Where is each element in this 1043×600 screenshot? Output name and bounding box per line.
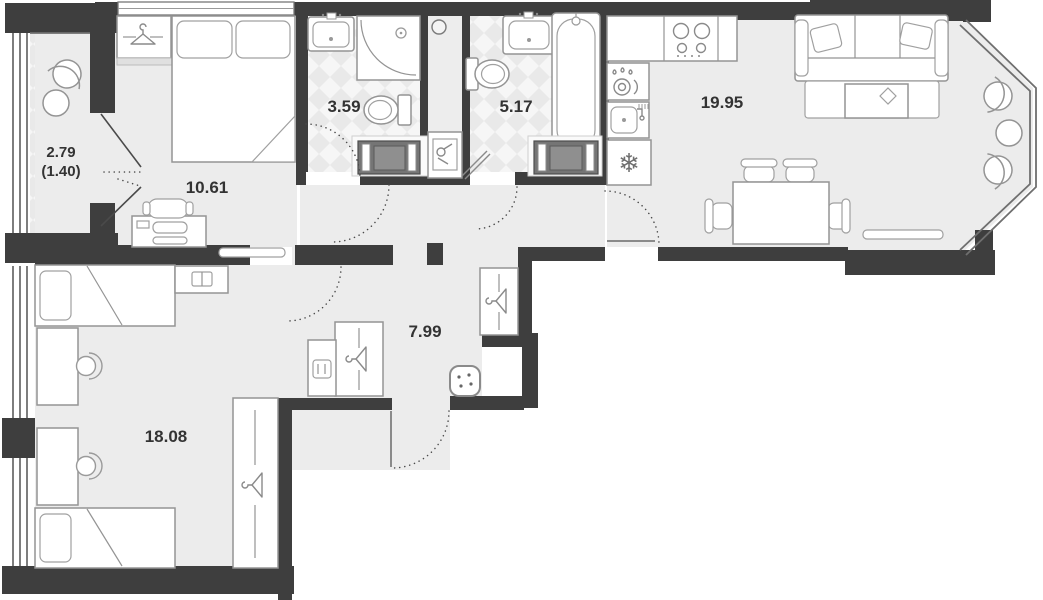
hall-wardrobe-2 bbox=[480, 268, 518, 335]
electrical-panel bbox=[450, 366, 480, 396]
dining-chair bbox=[783, 159, 817, 182]
washbasin-large bbox=[503, 12, 555, 54]
desk-2 bbox=[37, 428, 78, 505]
kitchen-sink bbox=[607, 102, 649, 138]
floor-plan-canvas: ❄ bbox=[0, 0, 1043, 600]
water-valve-icon bbox=[433, 139, 457, 170]
fridge: ❄ bbox=[607, 140, 651, 185]
side-table bbox=[996, 120, 1022, 146]
hall-wardrobe bbox=[335, 322, 383, 396]
dining-chair bbox=[828, 199, 850, 233]
snowflake-icon: ❄ bbox=[618, 148, 640, 178]
double-bed bbox=[172, 16, 295, 162]
balcony-table bbox=[43, 90, 69, 116]
coffee-table bbox=[845, 84, 908, 118]
dining-chair bbox=[705, 199, 732, 233]
children-bedroom-glazing bbox=[13, 266, 27, 566]
bedroom-window bbox=[118, 2, 294, 15]
washing-machine bbox=[534, 141, 598, 174]
desk-1 bbox=[37, 328, 78, 405]
balcony-coef-label: (1.40) bbox=[41, 163, 80, 180]
shower-room-area-label: 3.59 bbox=[327, 97, 360, 116]
bathtub bbox=[552, 13, 600, 153]
bedroom-desk-chair bbox=[143, 199, 193, 218]
dish-dryer bbox=[607, 63, 649, 100]
single-bed-1 bbox=[35, 265, 175, 326]
dining-chair bbox=[741, 159, 777, 182]
corner-shower bbox=[357, 16, 420, 80]
shoe-cabinet bbox=[308, 340, 336, 396]
bedroom-area-label: 10.61 bbox=[186, 178, 229, 197]
bedroom-wardrobe bbox=[117, 16, 174, 65]
vent-duct-icon bbox=[432, 20, 446, 34]
kitchen-counter bbox=[607, 16, 737, 61]
bathroom-area-label: 5.17 bbox=[499, 97, 532, 116]
shelf bbox=[219, 248, 285, 257]
nightstand-books bbox=[175, 266, 228, 293]
dining-table bbox=[733, 182, 829, 244]
children-room-area-label: 18.08 bbox=[145, 427, 188, 446]
window-sill-shelf bbox=[863, 230, 943, 239]
washing-machine bbox=[358, 141, 420, 174]
washbasin-small bbox=[308, 13, 354, 51]
children-wardrobe bbox=[233, 398, 278, 568]
kitchen-living-area-label: 19.95 bbox=[701, 93, 744, 112]
toilet-small bbox=[364, 95, 411, 125]
balcony-area-label: 2.79 bbox=[46, 144, 75, 161]
toilet-large bbox=[466, 58, 509, 90]
sofa bbox=[795, 15, 948, 81]
floor-plan: ❄ bbox=[0, 0, 1043, 600]
single-bed-2 bbox=[35, 508, 175, 568]
hallway-area-label: 7.99 bbox=[408, 322, 441, 341]
